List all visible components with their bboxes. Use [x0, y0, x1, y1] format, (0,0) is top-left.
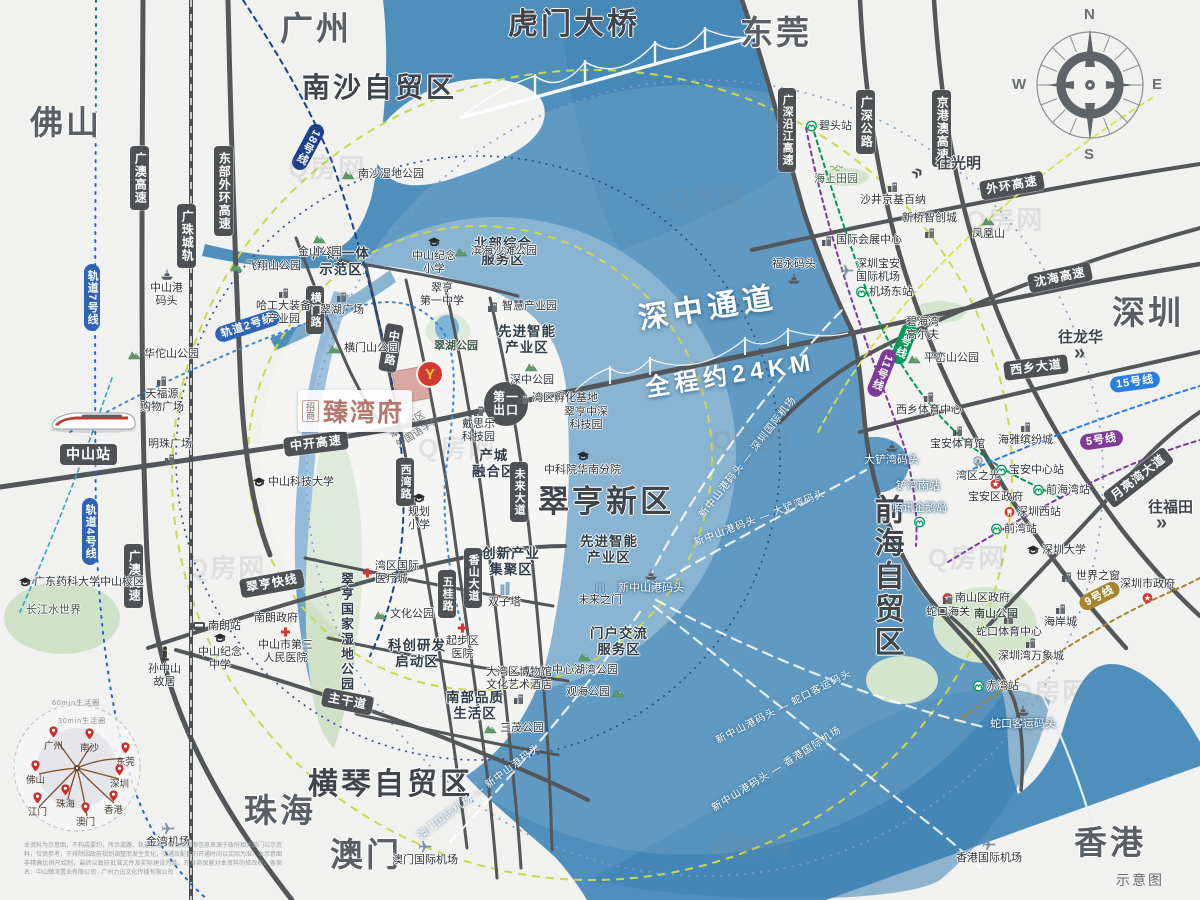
- mountain-icon: [908, 352, 922, 365]
- plane-icon: [161, 822, 175, 835]
- pin-icon: [120, 742, 131, 754]
- mountain-icon: [484, 722, 498, 735]
- zone-cuiheng: 翠亨新区: [538, 484, 674, 520]
- property-name: 臻湾府: [323, 393, 404, 429]
- poi-shekou-customs: 蛇口海关: [926, 592, 970, 619]
- compass-w: W: [1012, 76, 1026, 93]
- building-icon: [941, 592, 955, 605]
- pin-icon: [114, 764, 125, 776]
- metro-icon: [856, 286, 867, 298]
- dir-to-longhua-arrows: »: [1074, 342, 1082, 365]
- subzone-smart-industry-1: 先进智能 产业区: [498, 324, 556, 355]
- hospital-cross-icon: [362, 567, 373, 579]
- watermark: Q房网: [712, 828, 790, 865]
- poi-shenzhenwan-mixc: 深圳湾万象城: [998, 636, 1064, 663]
- dir-to-futian-arrows: »: [1156, 512, 1164, 535]
- building-icon: [512, 692, 526, 705]
- building-icon: [335, 290, 349, 303]
- poi-coastal-city: 海岸城: [1044, 602, 1077, 629]
- poi-shekou-sports: 蛇口体育中心: [976, 612, 1042, 639]
- mountain-icon: [328, 342, 342, 355]
- poi-shenzhen-west-station: 深圳西站: [1004, 506, 1061, 519]
- poi-zhongshan-memorial-school: 中山纪念 中学: [198, 632, 242, 671]
- poi-bay-glory-ferris: 湾区之光: [956, 456, 1000, 483]
- mountain-icon: [578, 650, 592, 663]
- poi-chanwan-south-station: 铲湾南站: [896, 480, 940, 493]
- living-circle-inner-label: 30min生活圈: [58, 716, 106, 726]
- poi-dachanwan-terminal: 大铲湾码头: [864, 440, 919, 467]
- building-icon: [472, 404, 486, 417]
- metro-icon: [991, 523, 1002, 535]
- poi-changjiang-waterworld: 长江水世界: [26, 604, 81, 617]
- dir-to-futian: 往福田: [1148, 496, 1193, 517]
- compass-s: S: [1084, 146, 1094, 163]
- city-zhuhai: 珠海: [244, 792, 316, 830]
- school-icon: [1026, 544, 1040, 557]
- metro-icon: [914, 516, 925, 528]
- mountain-icon: [525, 360, 539, 373]
- building-icon: [277, 286, 291, 299]
- watermark: Q房网: [928, 538, 1006, 575]
- watermark: Q房网: [1012, 672, 1090, 709]
- roadsign-guangshen-rd: 广深公路: [856, 90, 875, 154]
- watermark: Q房网: [188, 548, 266, 585]
- metro-icon: [806, 120, 817, 132]
- poi-tencent-penguin-island: 腾讯企鹅岛: [892, 502, 947, 528]
- poi-pingluanshan-park: 平峦山公园: [908, 352, 979, 365]
- poi-sanmao-park: 三茂公园: [484, 722, 544, 735]
- poi-bay-intl-medical-city: 湾区国际 医疗城: [362, 560, 419, 585]
- circle-city-shenzhen: 深圳: [110, 764, 129, 790]
- poi-mingzhu-plaza: 明珠广场: [148, 438, 192, 465]
- poi-cuihu-plaza: 翠湖广场: [320, 290, 364, 317]
- metro-icon: [973, 680, 984, 692]
- building-icon: [951, 424, 965, 437]
- roadsign-guangzhu-rail: 广珠城轨: [177, 204, 196, 268]
- circle-city-foshan: 佛山: [26, 760, 45, 786]
- circle-city-hongkong: 香港: [104, 790, 123, 816]
- zone-nansha: 南沙自贸区: [302, 72, 457, 104]
- compass-n: N: [1084, 6, 1095, 23]
- station-baoan-center: 宝安中心站: [996, 464, 1064, 477]
- ship-icon: [885, 440, 899, 453]
- building-icon: [1002, 612, 1016, 625]
- poi-haishang-tianyuan: 海上田园: [814, 164, 858, 186]
- poi-smart-industry-park: 智慧产业园: [486, 300, 557, 313]
- circle-city-jiangmen: 江门: [28, 792, 47, 818]
- pin-icon: [80, 802, 91, 814]
- roadsign-east-outer-ring: 东部外环高速: [214, 146, 233, 236]
- mountain-icon: [313, 232, 327, 245]
- station-airport-east: 机场东站: [856, 286, 913, 299]
- poi-cas-south-branch: 中科院华南分院: [544, 450, 621, 477]
- station-qianhaiwan: 前海湾站: [1033, 484, 1090, 497]
- poi-baoan-airport: 深圳宝安 国际机场: [840, 258, 900, 283]
- railway-icon: [1004, 506, 1015, 518]
- property-label: 招商 臻湾府: [298, 390, 412, 432]
- poi-memorial-primary: 中山纪念 小学: [412, 236, 456, 275]
- metrosign-line4: 轨道4号线: [82, 498, 98, 565]
- poi-zhongshan-port: 中山港 码头: [150, 268, 183, 307]
- poi-macau-airport: 澳门国际机场: [392, 840, 458, 867]
- gate-icon: [593, 580, 607, 593]
- poi-cuiheng-first-middle: 翠亨 第一中学: [420, 282, 464, 307]
- school-icon: [412, 492, 426, 505]
- poi-pharma-university: 广东药科大学中山校区: [18, 576, 144, 589]
- hospital-cross-icon: [280, 626, 291, 638]
- metrosign-line7: 轨道7号线: [84, 264, 100, 331]
- compass-e: E: [1152, 76, 1162, 93]
- scale-note: 示意图: [1116, 870, 1164, 890]
- pin-icon: [32, 792, 43, 804]
- circle-city-zhuhai: 珠海: [56, 784, 75, 810]
- building-icon: [820, 234, 834, 247]
- mountain-icon: [612, 686, 626, 699]
- city-dongguan: 东莞: [740, 14, 812, 52]
- roadsign-yanjiang-expwy: 广深沿江高速: [778, 88, 796, 172]
- poi-planned-primary: 规划 小学: [408, 492, 430, 531]
- statue-icon: [158, 646, 172, 662]
- park-changjiang: [4, 582, 120, 654]
- subzone-wetland-park: 翠亨国家湿地公园: [338, 572, 353, 692]
- building-icon: [1060, 570, 1074, 583]
- poi-window-of-world: 世界之窗: [1060, 570, 1120, 583]
- poi-nanlang-gov: 南朗政府: [254, 612, 298, 625]
- pin-icon: [30, 760, 41, 772]
- poi-bihaiwan-golf: 碧海湾 高尔夫: [906, 316, 939, 341]
- poi-fuyong-terminal: 福永码头: [772, 258, 816, 285]
- roadsign-wugui-rd: 五桂路: [438, 570, 456, 618]
- label-humen-bridge: 虎门大桥: [508, 8, 640, 43]
- poi-binhai-beach-park: 滨海沙滩公园: [455, 245, 537, 258]
- ferris-wheel-icon: [971, 456, 985, 469]
- plane-icon: [840, 264, 854, 277]
- poi-new-zhongshan-port: 新中山港码头: [618, 568, 684, 595]
- hospital-cross-icon: [457, 622, 468, 634]
- poi-guanhai-park: 观海公园: [566, 686, 626, 699]
- station-bitou: 碧头站: [806, 120, 852, 133]
- ship-icon: [160, 268, 174, 281]
- poi-zhongshan-tech-university: 中山科技大学: [252, 476, 334, 489]
- watermark: Q房网: [668, 178, 746, 215]
- poi-startup-hospital: 起步区 医院: [446, 622, 479, 660]
- poi-intl-convention-center: 国际会展中心: [820, 234, 902, 247]
- dir-to-guangming: 往光明: [936, 152, 981, 173]
- poi-shenzhong-park: 深中公园: [510, 360, 554, 387]
- poi-culture-park: 文化公园: [374, 608, 434, 621]
- stationsign-zhongshan: 中山站: [60, 444, 117, 465]
- poi-third-peoples-hospital: 中山市第三 人民医院: [258, 626, 313, 664]
- circle-city-nansha: 南沙: [80, 728, 99, 754]
- poi-haiya-mall: 海雅缤纷城: [998, 420, 1053, 447]
- roadsign-xiangshan-ave: 香山大道: [464, 548, 482, 608]
- zone-hengqin: 横琴自贸区: [308, 768, 473, 803]
- roadsign-guangao-expwy: 广澳高速: [130, 146, 149, 210]
- government-icon: [1142, 592, 1153, 604]
- station-qianwan: 前湾站: [991, 523, 1037, 536]
- pin-icon: [108, 790, 119, 802]
- pin-icon: [84, 728, 95, 740]
- mountain-icon: [230, 260, 244, 273]
- pin-icon: [60, 784, 71, 796]
- school-icon: [213, 632, 227, 645]
- ship-icon: [644, 568, 658, 581]
- poi-hit-industry-park: 哈工大装备 产业园: [256, 286, 311, 325]
- building-icon: [1024, 636, 1038, 649]
- plane-icon: [982, 838, 996, 851]
- subzone-smart-industry-2: 先进智能 产业区: [580, 534, 638, 565]
- wetland-icon: [829, 164, 843, 172]
- building-icon: [163, 452, 177, 465]
- city-foshan: 佛山: [30, 104, 102, 142]
- poi-hk-airport: 香港国际机场: [956, 838, 1022, 865]
- disclaimer-text: 本资料为示意图，不构成要约，所示道路、轨道交通、规划配套等信息来源于政府相关部门…: [24, 842, 282, 878]
- mountain-icon: [374, 608, 388, 621]
- ship-icon: [787, 272, 801, 285]
- poi-huatuoshan-park: 华佗山公园: [128, 348, 199, 361]
- watermark: Q房网: [288, 148, 366, 185]
- poi-shenzhen-gov: 深圳市政府: [1120, 578, 1175, 604]
- building-icon: [922, 390, 936, 403]
- poi-feixiang-park: 飞翔山公园: [230, 260, 301, 273]
- watermark: Q房网: [966, 200, 1044, 237]
- cmsk-logo-icon: Y: [418, 362, 442, 386]
- pin-icon: [48, 726, 59, 738]
- roadsign-future-ave: 未来大道: [510, 462, 528, 522]
- building-icon: [486, 300, 500, 313]
- city-guangzhou: 广州: [280, 10, 352, 48]
- poi-xinqiao-smart-city: 新桥智创城: [902, 212, 957, 239]
- building-icon: [1054, 602, 1068, 615]
- building-icon: [155, 374, 169, 387]
- poi-twin-towers: 双子塔: [488, 582, 521, 609]
- poi-central-lakebay-park: 中心湖湾公园: [552, 650, 618, 677]
- poi-xixiang-sports: 西乡体育中心: [896, 390, 962, 417]
- mountain-icon: [455, 245, 469, 258]
- poi-hengmenshan-park: 横门山公园: [328, 342, 399, 355]
- circle-city-guangzhou: 广州: [44, 726, 63, 752]
- school-icon: [252, 476, 266, 489]
- mountain-icon: [128, 348, 142, 361]
- poi-jinshan-park: 金山公园: [298, 232, 342, 259]
- subzone-innovation: 创新产业 集聚区: [482, 546, 540, 577]
- poi-bay-incubator: 湾区孵化基地: [516, 392, 598, 405]
- living-circle-outer-label: 60min生活圈: [52, 698, 100, 708]
- poi-baoan-gym: 宝安体育馆: [930, 424, 985, 451]
- poi-shenzhen-university: 深圳大学: [1026, 544, 1086, 557]
- watermark: Q房网: [712, 420, 790, 457]
- poi-tianfuyuan-mall: 天福源 购物广场: [140, 374, 184, 413]
- relocation-map: 广州 东莞 佛山 深圳 珠海 澳门 香港 南沙自贸区 翠亨新区 横琴自贸区 前海…: [0, 0, 1200, 900]
- school-icon: [576, 450, 590, 463]
- school-icon: [18, 576, 32, 589]
- building-icon: [516, 392, 530, 405]
- building-icon: [886, 180, 900, 193]
- poi-sunyatsen-residence: 孙中山 故居: [148, 646, 181, 688]
- metro-icon: [1033, 484, 1044, 496]
- watermark: Q房网: [418, 428, 496, 465]
- twin-towers-icon: [498, 582, 512, 595]
- school-icon: [427, 236, 441, 249]
- poi-zhongshen-tech-park: 翠亨中深 科技园: [564, 406, 608, 431]
- circle-city-macau: 澳门: [76, 802, 95, 828]
- poi-future-gate: 未来之门: [578, 580, 622, 607]
- subzone-rd-startup: 科创研发 启动区: [388, 638, 446, 669]
- building-icon: [923, 226, 937, 239]
- plane-icon: [418, 840, 432, 853]
- poi-bay-museum-hotel: 大湾区博物馆 文化艺术酒店: [486, 666, 552, 705]
- poi-cuihu-park: 翠湖公园: [434, 340, 478, 353]
- city-hongkong: 香港: [1074, 824, 1146, 862]
- property-brand: 招商: [302, 400, 319, 422]
- building-icon: [1019, 420, 1033, 433]
- city-shenzhen: 深圳: [1112, 294, 1184, 332]
- poi-shajing-kingkey: 沙井京基百纳: [860, 180, 926, 207]
